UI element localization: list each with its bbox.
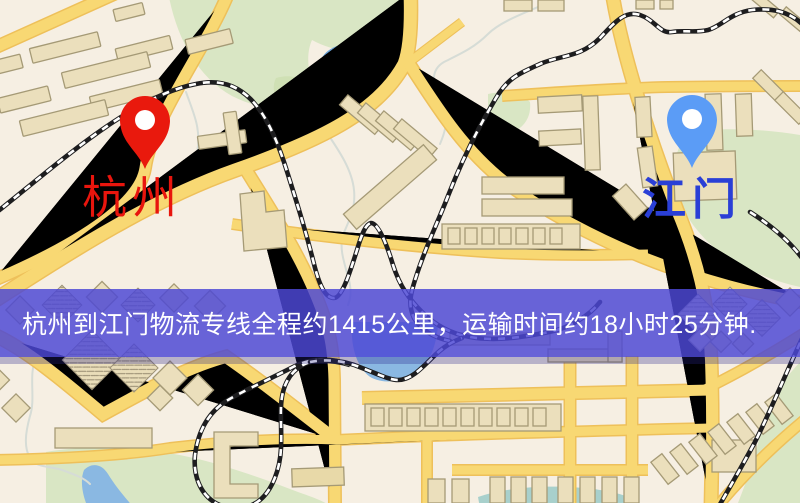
logistics-route-map: 杭州 江门 杭州到江门物流专线全程约1415公里，运输时间约18小时25分钟. bbox=[0, 0, 800, 503]
banner-shadow bbox=[0, 357, 800, 364]
origin-pin-hole bbox=[135, 110, 155, 130]
route-info-banner: 杭州到江门物流专线全程约1415公里，运输时间约18小时25分钟. bbox=[0, 289, 800, 357]
map-image bbox=[0, 0, 800, 503]
route-info-text: 杭州到江门物流专线全程约1415公里，运输时间约18小时25分钟. bbox=[0, 305, 757, 341]
destination-pin-hole bbox=[682, 109, 702, 129]
